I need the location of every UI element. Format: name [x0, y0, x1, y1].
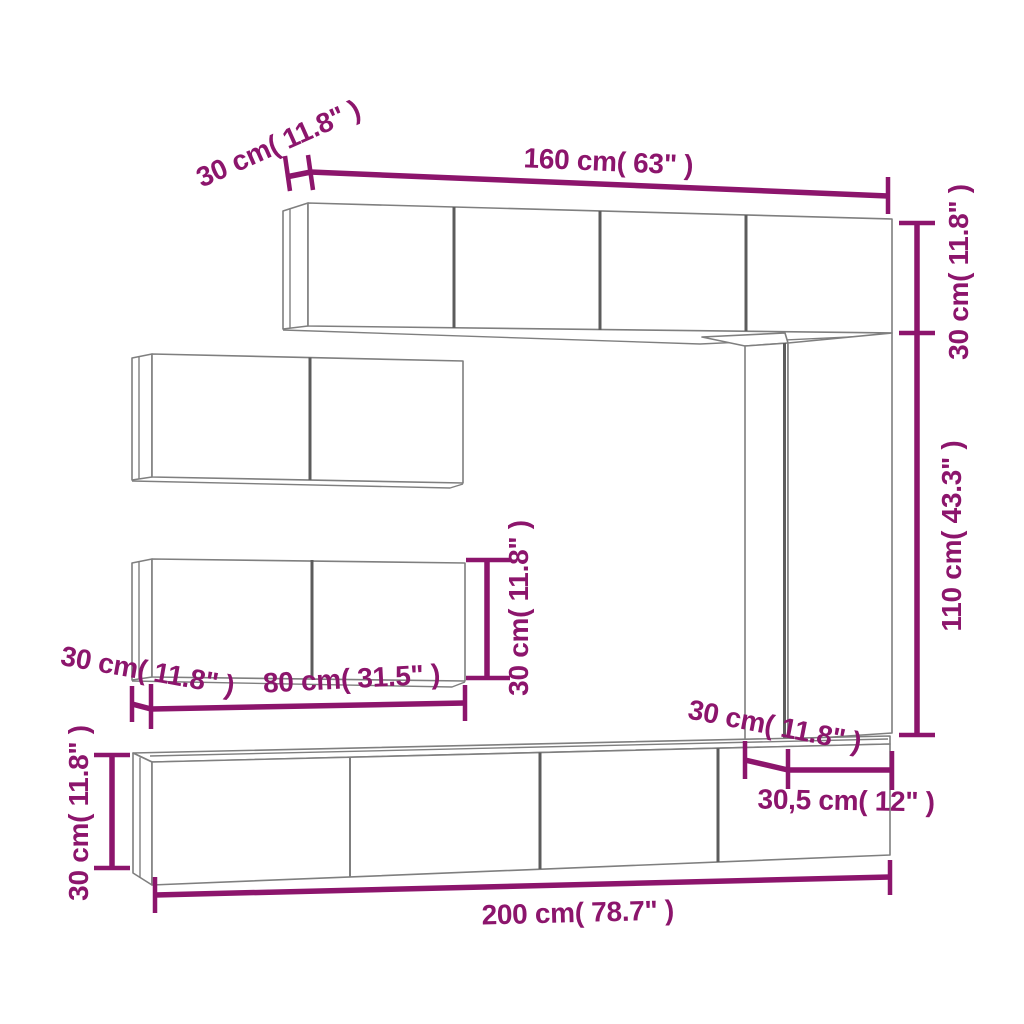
dimension-label-right-lower-height: 110 cm( 43.3" ): [936, 441, 967, 632]
product-dimension-diagram: 30 cm( 11.8" ) 160 cm( 63" ) 30 cm( 11.8…: [0, 0, 1024, 1024]
upper-mid-front: [152, 354, 463, 483]
dim-line: [286, 172, 311, 177]
column-side-face: [745, 343, 788, 746]
dim-tick: [285, 156, 290, 191]
mid-wall-cabinet-upper: [132, 354, 463, 488]
dimension-label-right-upper-height: 30 cm( 11.8" ): [943, 184, 974, 360]
dimension-label-bottom-cabinet-height: 30 cm( 11.8" ): [63, 725, 94, 901]
dim-line: [151, 703, 465, 709]
diagram-canvas: 30 cm( 11.8" ) 160 cm( 63" ) 30 cm( 11.8…: [0, 0, 1024, 1024]
dimension-label-top-depth: 30 cm( 11.8" ): [192, 93, 365, 193]
top-cabinet-side-panel: [283, 203, 308, 329]
upper-mid-side-panel: [132, 354, 152, 480]
top-wall-cabinet: [283, 203, 892, 344]
dimension-label-mid-cabinet-height: 30 cm( 11.8" ): [503, 520, 534, 696]
bottom-cabinet-side-panel: [133, 753, 152, 885]
dimension-mid-cabinet-height: 30 cm( 11.8" ): [466, 520, 534, 696]
dimension-right-lower-height: 110 cm( 43.3" ): [899, 333, 967, 735]
column-front-face: [788, 333, 892, 740]
dim-line: [132, 704, 151, 709]
dimension-top-width: 160 cm( 63" ): [310, 142, 888, 214]
dimension-right-upper-height: 30 cm( 11.8" ): [899, 184, 974, 360]
dimension-top-depth: 30 cm( 11.8" ): [192, 93, 365, 193]
dimension-label-top-width: 160 cm( 63" ): [523, 142, 694, 180]
dimension-bottom-cabinet-height: 30 cm( 11.8" ): [63, 725, 130, 901]
dimension-label-column-width: 30,5 cm( 12" ): [757, 783, 935, 817]
right-column-cabinet: [702, 333, 892, 746]
dimension-label-bottom-cabinet-width: 200 cm( 78.7" ): [481, 894, 674, 930]
